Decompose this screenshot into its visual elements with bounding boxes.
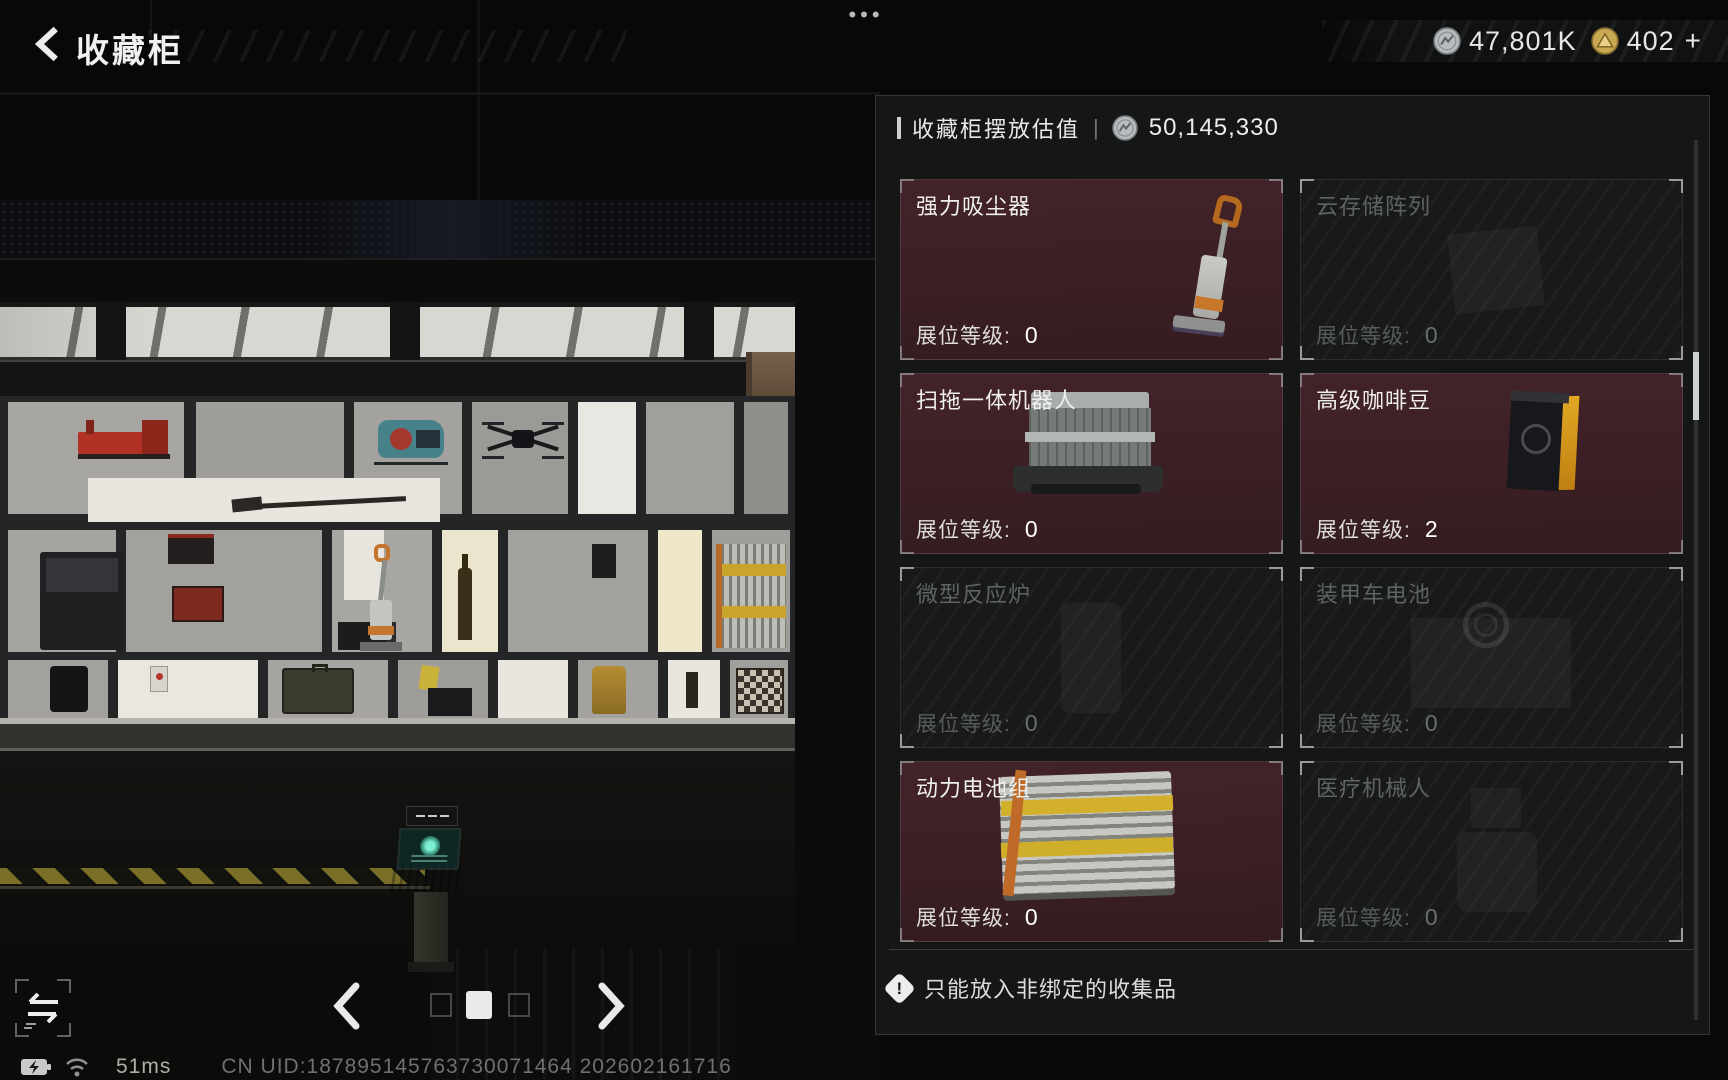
upright-vacuum-item [356, 548, 406, 652]
train-base [78, 454, 170, 459]
item-name: 医疗机械人 [1316, 771, 1431, 803]
sticker-dot [156, 673, 163, 680]
handheld-device-item [172, 586, 224, 622]
collection-card-cloud-storage[interactable]: 云存储阵列 展位等级:0 [1300, 179, 1683, 360]
drone-item [482, 414, 564, 468]
side-wall [795, 302, 880, 1080]
vacuum-pole [378, 560, 388, 604]
header-separator: | [1093, 115, 1099, 141]
toy-train-item [78, 418, 173, 462]
perforated-panel-glow [300, 200, 600, 258]
radio-item [168, 534, 214, 564]
booth-level: 展位等级:2 [1316, 514, 1438, 544]
battery-stripe [716, 564, 786, 576]
booth-level: 展位等级:0 [1316, 708, 1438, 738]
mini-fridge-item [40, 552, 124, 650]
shelf-cell [126, 530, 322, 652]
helicopter-model-item [368, 412, 460, 472]
collection-card-armored-battery[interactable]: 装甲车电池 展位等级:0 [1300, 567, 1683, 748]
ceiling-beam [0, 258, 880, 302]
gold-amount: 402 [1627, 26, 1675, 57]
back-chevron-icon [32, 25, 62, 63]
train-body [78, 432, 146, 454]
add-currency-button[interactable]: + [1685, 25, 1702, 57]
gold-relic-item [592, 666, 626, 714]
collection-card-mopping-robot[interactable]: 扫拖一体机器人 展位等级:0 [900, 373, 1283, 554]
collection-card-micro-reactor[interactable]: 微型反应炉 展位等级:0 [900, 567, 1283, 748]
wifi-signal-icon [64, 1055, 90, 1079]
vacuum-cleaner-image [1131, 194, 1261, 344]
poster-item [592, 544, 616, 578]
vacuum-base [360, 642, 402, 651]
shelf-cell-backlit [658, 530, 702, 652]
scene-background [0, 0, 880, 1080]
medical-robot-image [1431, 788, 1561, 918]
booth-level: 展位等级:0 [916, 514, 1038, 544]
cloud-storage-array-image [1431, 220, 1561, 320]
hazard-stripe [0, 868, 425, 884]
header-tick-decoration [897, 117, 901, 139]
title-hatch-decoration [148, 30, 626, 62]
item-name: 高级咖啡豆 [1316, 383, 1431, 415]
switch-view-button[interactable] [16, 980, 70, 1036]
shelf-cell [744, 402, 788, 514]
cabinet-top-beam [0, 360, 795, 396]
battery-strap [716, 544, 722, 648]
booth-level: 展位等级:0 [916, 708, 1038, 738]
chevron-right-icon [592, 980, 630, 1032]
sticker-card-item [150, 666, 168, 692]
hazard-stripe-edge [0, 886, 430, 889]
battery-charging-icon [20, 1056, 54, 1078]
next-page-button[interactable] [592, 980, 630, 1037]
shelf-cell [646, 402, 734, 514]
armored-vehicle-battery-image [1401, 598, 1591, 718]
booth-level: 展位等级:0 [916, 320, 1038, 350]
item-name: 扫拖一体机器人 [916, 383, 1077, 415]
figurine-item [686, 672, 698, 708]
drone-body [512, 430, 534, 448]
drone-prop [542, 456, 564, 459]
item-name: 云存储阵列 [1316, 189, 1431, 221]
bottle-neck [462, 554, 468, 570]
skylight-post [96, 302, 126, 360]
page-indicator[interactable] [430, 993, 452, 1017]
currency-bar: 47,801K 402 + [1322, 20, 1728, 62]
shelf-cell-white [118, 660, 258, 718]
collection-card-vacuum[interactable]: 强力吸尘器 展位等级:0 [900, 179, 1283, 360]
kiosk-keyboard [390, 868, 465, 892]
vacuum-band [368, 626, 394, 635]
valuation-label: 收藏柜摆放估值 [912, 112, 1080, 144]
more-menu-button[interactable]: ••• [836, 2, 896, 32]
kiosk-base [408, 962, 454, 972]
checkered-case-item [736, 668, 784, 714]
collection-panel: 收藏柜摆放估值 | 50,145,330 强力吸尘器 展位等级:0 云存储阵列 [875, 95, 1710, 1035]
status-bar: 51ms CN UID:187895145763730071464 202602… [0, 1054, 760, 1080]
drone-prop [482, 422, 504, 425]
kiosk-pedestal [414, 892, 448, 966]
uid-text: CN UID:187895145763730071464 20260216171… [221, 1055, 731, 1079]
shelf-cell [508, 530, 648, 652]
booth-level: 展位等级:0 [1316, 902, 1438, 932]
train-cab [142, 420, 168, 454]
page-title: 收藏柜 [76, 24, 184, 72]
game-screen: 收藏柜 ••• 47,801K 402 + 收藏柜摆放估值 | [0, 0, 1728, 1080]
silver-currency[interactable]: 47,801K [1433, 26, 1577, 57]
collection-card-medical-robot[interactable]: 医疗机械人 展位等级:0 [1300, 761, 1683, 942]
valuation-value: 50,145,330 [1149, 114, 1279, 142]
item-name: 动力电池组 [916, 771, 1031, 803]
micro-reactor-image [1031, 598, 1151, 718]
ceiling-seam [0, 92, 880, 95]
wine-bottle-item [458, 568, 472, 640]
collection-card-coffee-beans[interactable]: 高级咖啡豆 展位等级:2 [1300, 373, 1683, 554]
briefcase-item [282, 668, 354, 714]
battery-module-item [716, 544, 786, 648]
panel-header: 收藏柜摆放估值 | 50,145,330 [897, 112, 1279, 144]
drone-prop [542, 422, 564, 425]
collection-card-power-battery[interactable]: 动力电池组 展位等级:0 [900, 761, 1283, 942]
gold-coin-icon [1591, 27, 1619, 55]
ping-value: 51ms [116, 1055, 171, 1079]
kiosk-screen [397, 828, 462, 870]
swap-arrows-icon [16, 980, 70, 1036]
panel-scrollbar-thumb[interactable] [1693, 352, 1699, 420]
fridge-door [46, 558, 118, 592]
heli-engine [416, 430, 440, 448]
dark-cube-item [428, 688, 472, 716]
briefcase-handle [312, 664, 328, 672]
kiosk-screen-text [411, 855, 448, 863]
phone-item [50, 666, 88, 712]
rifle-item [232, 492, 408, 514]
heli-rotor-hub [390, 428, 412, 450]
item-name: 强力吸尘器 [916, 189, 1031, 221]
panel-divider [889, 949, 1695, 950]
panel-scrollbar-track[interactable] [1694, 140, 1698, 1020]
booth-level: 展位等级:0 [1316, 320, 1438, 350]
rifle-barrel [256, 496, 406, 509]
back-button[interactable] [24, 22, 70, 66]
battery-stripe [716, 606, 786, 618]
silver-coin-icon [1112, 115, 1138, 141]
item-name: 微型反应炉 [916, 577, 1031, 609]
display-cabinet [0, 396, 795, 718]
shelf-cell-white [498, 660, 568, 718]
drone-prop [482, 456, 504, 459]
premium-coffee-beans-image [1509, 390, 1599, 500]
chevron-left-icon [328, 980, 366, 1032]
train-chimney [86, 420, 94, 434]
silver-amount: 47,801K [1469, 26, 1577, 57]
gold-currency[interactable]: 402 + [1591, 25, 1702, 57]
heli-skid [374, 462, 448, 465]
kiosk-sign [406, 806, 458, 826]
cabinet-base [0, 724, 795, 748]
prev-page-button[interactable] [328, 980, 366, 1037]
kiosk-globe-graphic [420, 836, 441, 856]
page-indicator-active[interactable] [466, 991, 492, 1019]
warning-row: ! 只能放入非绑定的收集品 [888, 972, 1177, 1004]
warning-text: 只能放入非绑定的收集品 [924, 972, 1177, 1004]
page-indicator[interactable] [508, 993, 530, 1017]
crate-item [746, 352, 795, 398]
booth-level: 展位等级:0 [916, 902, 1038, 932]
exclamation-icon: ! [883, 972, 916, 1005]
silver-coin-icon [1433, 27, 1461, 55]
skylight-post [390, 302, 420, 360]
item-name: 装甲车电池 [1316, 577, 1431, 609]
shelf-cell [578, 402, 636, 514]
skylight-post [684, 302, 714, 360]
